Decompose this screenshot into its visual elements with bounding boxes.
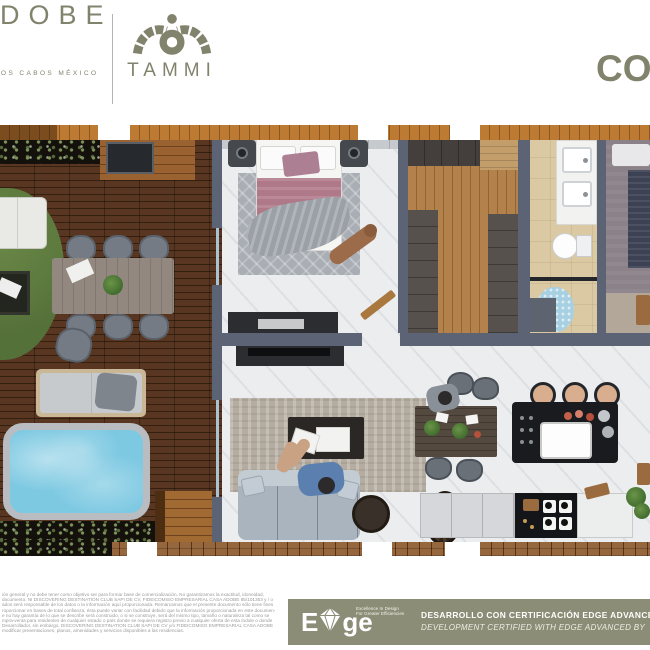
bedroom-slider-glass [216, 228, 219, 285]
dining-chair [472, 377, 499, 400]
napkin [465, 414, 478, 425]
bowl [474, 431, 481, 438]
sink [562, 147, 592, 173]
wood-bench [636, 295, 650, 325]
floor-plan [0, 125, 650, 556]
shower-glass [530, 277, 597, 281]
nightstand [228, 140, 256, 167]
pergola-dark-section [0, 125, 57, 140]
knob [529, 440, 533, 444]
adobe-logo-text: DOBE [0, 0, 113, 31]
column-gap [450, 125, 480, 140]
table-plant [424, 420, 440, 436]
column-gap [358, 125, 388, 140]
round-side-table [352, 495, 390, 533]
person-head [438, 391, 452, 405]
wall [398, 140, 408, 333]
double-vanity [556, 140, 597, 225]
table-plant [452, 423, 468, 439]
tomato [564, 412, 572, 420]
wall [212, 140, 222, 228]
legal-disclaimer: ión general y no debe tener como objetiv… [2, 592, 285, 634]
wardrobe [408, 210, 438, 333]
wall [212, 497, 222, 542]
living-slider-glass [216, 400, 219, 497]
wall [212, 333, 362, 346]
stove-burner [559, 517, 572, 530]
stove-burner [543, 517, 556, 530]
edge-logo-e: E [301, 611, 318, 633]
right-brand-text: CO [596, 48, 650, 90]
table-plant [103, 275, 123, 295]
wardrobe [488, 214, 518, 333]
cutting-board [523, 499, 539, 511]
planter-top [0, 138, 100, 164]
outdoor-dining-chair [139, 314, 169, 340]
edge-diamond-icon [319, 606, 341, 634]
stove-counter [515, 493, 577, 538]
bbq-grill [106, 142, 154, 174]
wardrobe [408, 138, 480, 166]
column-gap [445, 542, 480, 556]
toilet-tank [576, 235, 592, 257]
plate [602, 426, 614, 438]
plate [598, 410, 610, 422]
wall [212, 346, 222, 400]
tammi-logo-text: TAMMI [126, 60, 218, 82]
bed [256, 139, 342, 251]
lounger-towel [94, 372, 138, 412]
floor-plant [634, 503, 650, 519]
shower-bench [530, 298, 556, 332]
stove-burner [559, 500, 572, 513]
adobe-logo-subtitle: OS CABOS MÉXICO [1, 70, 98, 77]
stove-burner [543, 500, 556, 513]
column-gap [127, 542, 157, 556]
wood-steps [155, 491, 212, 543]
edge-tagline: Excellence In Design For Greater Efficie… [356, 606, 404, 616]
dishwasher [577, 493, 633, 538]
edge-certification-band: E ge Excellence In Design For Greater Ef… [288, 599, 650, 645]
edge-tagline-line2: For Greater Efficiencies [356, 611, 404, 616]
disclaimer-line: modificar presentaciones, planos, amenid… [2, 628, 285, 633]
kitchen-sink [540, 422, 592, 459]
certification-text: DESARROLLO CON CERTIFICACIÓN EDGE ADVANC… [421, 610, 650, 632]
knob [530, 525, 534, 529]
header-divider [112, 14, 113, 104]
closet-bench [480, 140, 518, 170]
column-gap [98, 125, 130, 140]
wall [597, 138, 606, 346]
lamp [348, 147, 360, 159]
sink [562, 181, 592, 207]
wall [518, 138, 530, 346]
certification-text-es: DESARROLLO CON CERTIFICACIÓN EDGE ADVANC… [421, 610, 650, 620]
laptop [316, 427, 350, 452]
knob [529, 416, 533, 420]
outdoor-sofa [0, 197, 47, 249]
person-head [318, 477, 335, 494]
fridge-cabinets [420, 493, 515, 538]
tv [248, 348, 330, 356]
dining-chair [425, 457, 452, 480]
plunge-pool [3, 423, 150, 520]
wall [212, 285, 222, 333]
disclaimer-line: ados será responsable de los datos o la … [2, 602, 285, 607]
wood-stool [637, 463, 650, 485]
dining-chair [456, 459, 483, 482]
lamp [236, 147, 248, 159]
knob [523, 519, 527, 523]
planter-bottom-left [0, 540, 112, 556]
console-items [258, 319, 304, 329]
knob [520, 416, 524, 420]
outdoor-dining-chair [103, 314, 133, 340]
tammi-logo-icon [126, 10, 218, 60]
accent-pillow [282, 151, 320, 177]
second-bed-pillows [612, 144, 650, 166]
second-bed-throw [628, 170, 650, 268]
nightstand [340, 140, 368, 167]
tomato [586, 413, 594, 421]
knob [520, 428, 524, 432]
toilet [552, 233, 578, 259]
tomato [575, 410, 583, 418]
column-gap [362, 542, 392, 556]
dog-head [364, 224, 377, 237]
certification-text-en: DEVELOPMENT CERTIFIED WITH EDGE ADVANCED… [421, 623, 650, 632]
kitchen-island [512, 402, 618, 463]
knob [520, 440, 524, 444]
knob [529, 428, 533, 432]
